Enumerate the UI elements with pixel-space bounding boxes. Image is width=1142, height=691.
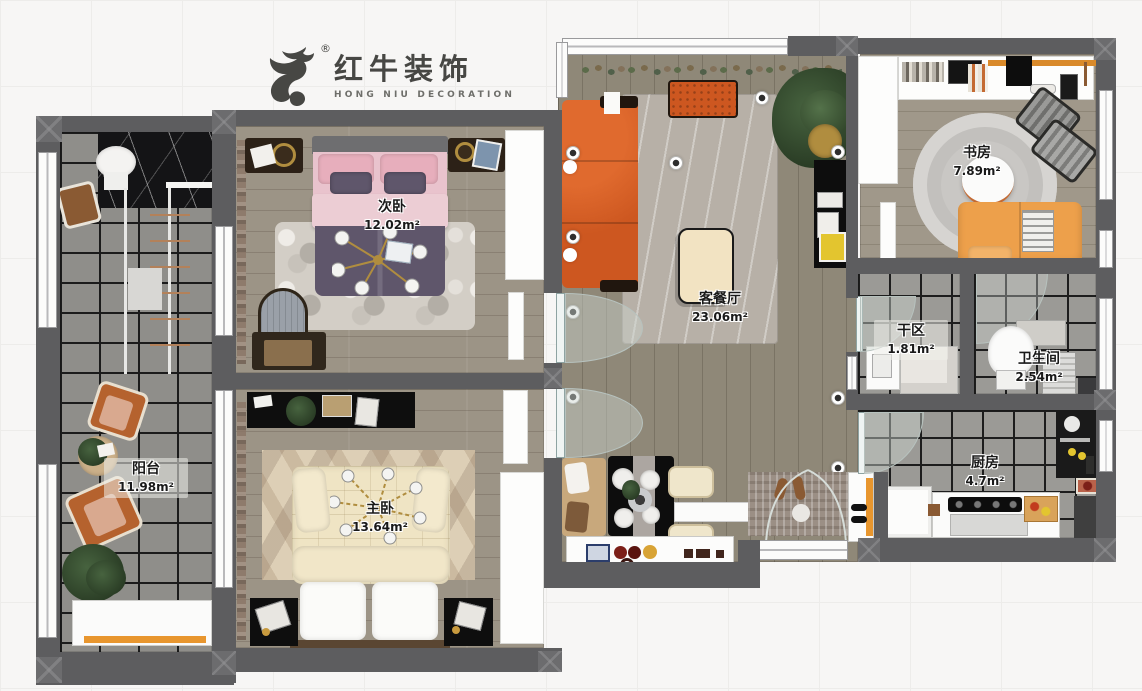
study-poster [1006,56,1032,86]
bull-logo-icon [262,44,324,106]
wall-balcony-bottom [36,652,234,685]
wall-corner [858,538,880,562]
wall-bedroom-divider [212,373,562,389]
dresser-tray [322,395,352,417]
cutting-board [1024,496,1058,522]
sideboard-item [716,550,724,558]
appliance-kettle [614,546,627,559]
wall-dry-bath-divider [960,268,974,398]
window-bathroom-right [1099,298,1113,390]
downlight [669,156,683,170]
appliance-pot [643,545,657,559]
brand-name-cn: 红牛装饰 [334,46,515,88]
table-plant-sprig [622,480,640,500]
bedroom-door-panel-2 [556,388,565,458]
room-label-dry-area: 干区 1.81m² [874,320,948,360]
entry-cabinet-accent [866,478,873,536]
master-wardrobe [500,472,544,644]
secondary-cabinet-strip [508,292,524,360]
master-pillow-left [291,466,332,533]
hanger-bar [150,214,190,216]
master-bolster [292,546,450,582]
room-area: 4.7m² [946,473,1024,490]
window-kitchen-right [1099,420,1113,472]
nightstand-knob-left [262,628,270,636]
downlight [566,146,580,160]
wall-balcony-top [36,116,232,132]
room-name: 次卧 [351,197,433,217]
purple-pillow-left [330,172,372,194]
dining-chair-1 [668,466,714,498]
room-name: 干区 [878,321,944,341]
bedroom-door-panel-1 [556,293,565,363]
balcony-ledge [166,182,212,188]
window-living-right [847,356,857,390]
room-area: 12.02m² [351,217,433,234]
lemon [1078,452,1086,460]
cooktop [948,497,1022,512]
balcony-large-plant-leaf [86,560,126,596]
room-area: 23.06m² [670,309,770,326]
room-area: 2.54m² [993,369,1085,386]
nightstand-left-tray [272,143,296,167]
wall-corner [544,368,562,388]
dinner-plate [640,470,660,490]
study-side-cabinet [858,56,898,184]
desk-books [902,62,944,82]
wall-corner [836,36,858,56]
wall-kitchen-bottom [858,538,1110,562]
purple-pillow-right [384,172,426,194]
shelf-books [968,64,988,92]
curtain-secondary [237,140,246,364]
room-name: 客餐厅 [670,289,770,309]
bed-decor-item [385,240,414,263]
study-sofa-magazine [1022,210,1054,252]
lemon [1068,448,1076,456]
hanger-bar [150,344,190,346]
room-name: 卫生间 [993,349,1085,369]
room-label-living-dining: 客餐厅 23.06m² [666,288,774,328]
laundry-rod-left [124,188,127,374]
kitchen-faucet [1060,438,1090,442]
secondary-wardrobe [505,130,544,280]
wall-entry-corner [738,540,760,588]
dinner-plate [614,508,634,528]
wall-bedroom-top [212,110,562,126]
window-living-top [562,38,788,55]
room-label-master-bedroom: 主卧 13.64m² [335,498,425,538]
entry-label-tag [851,504,867,511]
wall-corner [212,651,236,675]
window-master-bedroom [215,390,233,588]
room-label-secondary-bedroom: 次卧 12.02m² [347,196,437,236]
room-area: 13.64m² [339,519,421,536]
wall-study-top [855,38,1107,54]
appliance-kettle [628,546,641,559]
dresser-plant [286,396,316,426]
window-balcony-left-2 [38,464,57,638]
downlight [566,230,580,244]
room-area: 7.89m² [936,163,1018,180]
room-label-bathroom: 卫生间 2.54m² [989,348,1089,388]
window-study-right-1 [1099,90,1113,200]
brand-logo: ® 红牛装饰 HONG NIU DECORATION [262,40,482,110]
floor-plan-canvas: ® 红牛装饰 HONG NIU DECORATION [0,0,1142,691]
wall-corner [1094,390,1116,410]
master-headboard [290,640,450,648]
window-secondary-bedroom [215,226,233,336]
desk-pen [1084,62,1087,86]
room-area: 11.98m² [108,479,184,496]
room-name: 主卧 [339,499,421,519]
curtain-master [237,402,246,640]
console-magazine [817,192,843,208]
wall-central-upper [544,110,562,293]
brand-name-en: HONG NIU DECORATION [334,90,515,100]
window-balcony-left-1 [38,152,57,328]
sofa-towel [604,92,620,114]
window-living-left [556,42,568,98]
hanger-bar [150,318,190,320]
window-study-right-2 [1099,230,1113,268]
kitchen-sink [1064,416,1080,432]
bench-pillow-white [564,462,590,495]
downlight [831,145,845,159]
kitchen-bottle [1086,456,1094,474]
kitchen-dark-cabinet [1074,496,1098,538]
master-cabinet-strip [503,390,528,464]
wall-bedroom-bottom [212,648,562,672]
wall-corner [212,110,236,134]
entry-label-tag [851,516,867,523]
appliance-box [586,544,610,562]
desk-chair [258,288,308,338]
room-name: 厨房 [946,453,1024,473]
desk-tablet [1060,74,1078,100]
wall-corner [36,116,62,142]
white-pillow-left [300,582,366,640]
nightstand-right-magazine [472,139,502,171]
chandelier-secondary [332,226,428,298]
nightstand-knob-right [452,626,460,634]
yellow-bag [819,232,846,262]
wall-corner [538,651,562,672]
wall-corner [1094,538,1116,562]
sideboard-item [696,549,710,558]
entry-glass-door [758,540,848,560]
white-pillow-right [372,582,438,640]
room-label-study: 书房 7.89m² [932,142,1022,182]
room-label-balcony: 阳台 11.98m² [104,458,188,498]
sofa-seam-dot [563,248,577,262]
sofa-seam-dot [563,160,577,174]
downlight [831,391,845,405]
wall-entry-right [874,472,888,542]
counter-tray [950,514,1028,536]
bench-pillow-brown [564,501,589,533]
sofa-arm-bottom [600,280,638,292]
wall-corner [1094,38,1116,60]
wall-bath-kitchen-divider [858,394,1116,410]
secondary-desk-top [264,340,312,366]
balcony-mat [128,268,162,310]
sideboard-item [684,549,693,558]
balcony-cabinet-accent [84,636,206,643]
kitchen-small-item [928,504,940,516]
registered-mark: ® [320,42,331,55]
room-label-kitchen: 厨房 4.7m² [942,452,1028,492]
orange-ottoman [668,80,738,118]
room-area: 1.81m² [878,341,944,358]
room-name: 书房 [936,143,1018,163]
hanger-bar [150,240,190,242]
dresser-magazine [355,397,380,427]
entry-door-swing-arcs [748,462,852,546]
wall-living-bottom [544,562,758,588]
room-name: 阳台 [108,459,184,479]
wall-study-bottom [846,258,1116,274]
downlight [755,91,769,105]
wall-corner [36,657,62,683]
